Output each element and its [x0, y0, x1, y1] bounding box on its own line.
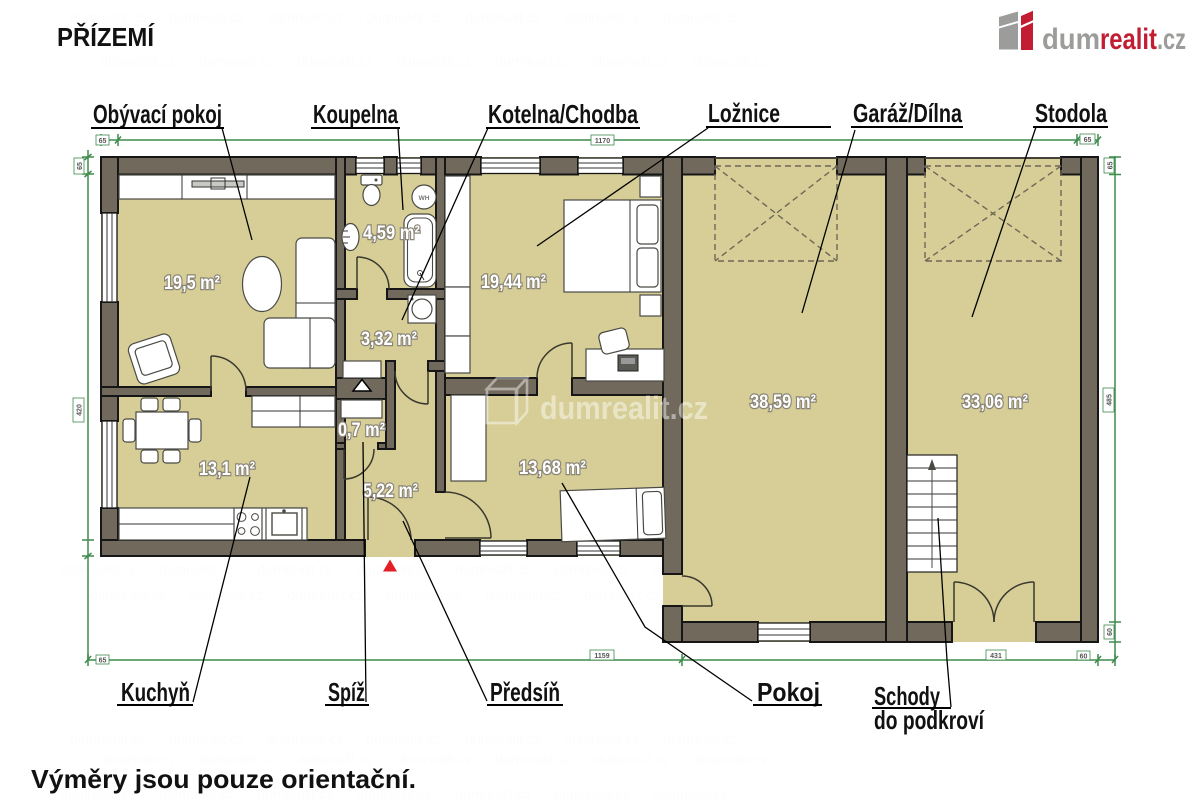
svg-text:65: 65 [99, 138, 107, 145]
svg-text:0,7 m²: 0,7 m² [338, 420, 385, 441]
svg-text:realit: realit [1100, 23, 1157, 56]
svg-text:5,22 m²: 5,22 m² [363, 481, 418, 502]
svg-text:dumrealit.cz: dumrealit.cz [540, 390, 708, 426]
svg-text:431: 431 [990, 653, 1002, 660]
svg-text:Spíž: Spíž [328, 677, 365, 707]
svg-text:dumrealit.cz dumrealit.cz: dumrealit.cz dumrealit.cz dumrealit.cz d… [70, 9, 738, 25]
svg-text:65: 65 [99, 658, 107, 665]
svg-text:Předsíň: Předsíň [490, 677, 560, 707]
svg-text:13,68 m²: 13,68 m² [519, 458, 586, 479]
svg-text:60: 60 [1080, 654, 1088, 661]
svg-text:Koupelna: Koupelna [313, 99, 398, 129]
svg-text:33,06 m²: 33,06 m² [962, 392, 1028, 413]
svg-text:Stodola: Stodola [1035, 98, 1107, 128]
svg-text:65: 65 [1108, 162, 1115, 170]
svg-text:1170: 1170 [595, 138, 610, 145]
svg-text:dum: dum [1042, 23, 1100, 56]
svg-text:Výměry jsou pouze orientační.: Výměry jsou pouze orientační. [31, 764, 416, 794]
svg-text:13,1 m²: 13,1 m² [199, 459, 255, 480]
svg-text:65: 65 [77, 162, 84, 170]
svg-text:65: 65 [1084, 137, 1092, 144]
svg-text:Ložnice: Ložnice [708, 98, 780, 128]
svg-text:PŘÍZEMÍ: PŘÍZEMÍ [57, 22, 155, 52]
svg-text:1159: 1159 [594, 653, 609, 660]
svg-text:do podkroví: do podkroví [874, 705, 985, 735]
svg-text:Obývací pokoj: Obývací pokoj [93, 99, 222, 129]
svg-text:485: 485 [1107, 394, 1114, 406]
svg-text:dumrealit.cz dumrealit.cz: dumrealit.cz dumrealit.cz dumrealit.cz d… [100, 53, 768, 69]
svg-text:19,44 m²: 19,44 m² [481, 272, 546, 293]
svg-text:38,59 m²: 38,59 m² [750, 392, 816, 413]
svg-text:Garáž/Dílna: Garáž/Dílna [853, 98, 962, 128]
svg-text:dumrealit.cz dumrealit.cz: dumrealit.cz dumrealit.cz dumrealit.cz d… [70, 731, 738, 747]
svg-text:dumrealit.cz dumrealit.cz: dumrealit.cz dumrealit.cz dumrealit.cz d… [90, 587, 758, 603]
svg-text:Kuchyň: Kuchyň [121, 677, 190, 707]
svg-text:.cz: .cz [1157, 23, 1186, 56]
svg-text:4,59 m²: 4,59 m² [363, 223, 420, 244]
svg-text:19,5 m²: 19,5 m² [164, 273, 220, 294]
svg-text:Kotelna/Chodba: Kotelna/Chodba [488, 99, 638, 129]
svg-text:60: 60 [1107, 628, 1114, 636]
svg-text:3,32 m²: 3,32 m² [361, 329, 417, 350]
svg-text:420: 420 [77, 404, 84, 416]
svg-text:Pokoj: Pokoj [757, 677, 820, 707]
svg-text:WH: WH [419, 195, 430, 202]
